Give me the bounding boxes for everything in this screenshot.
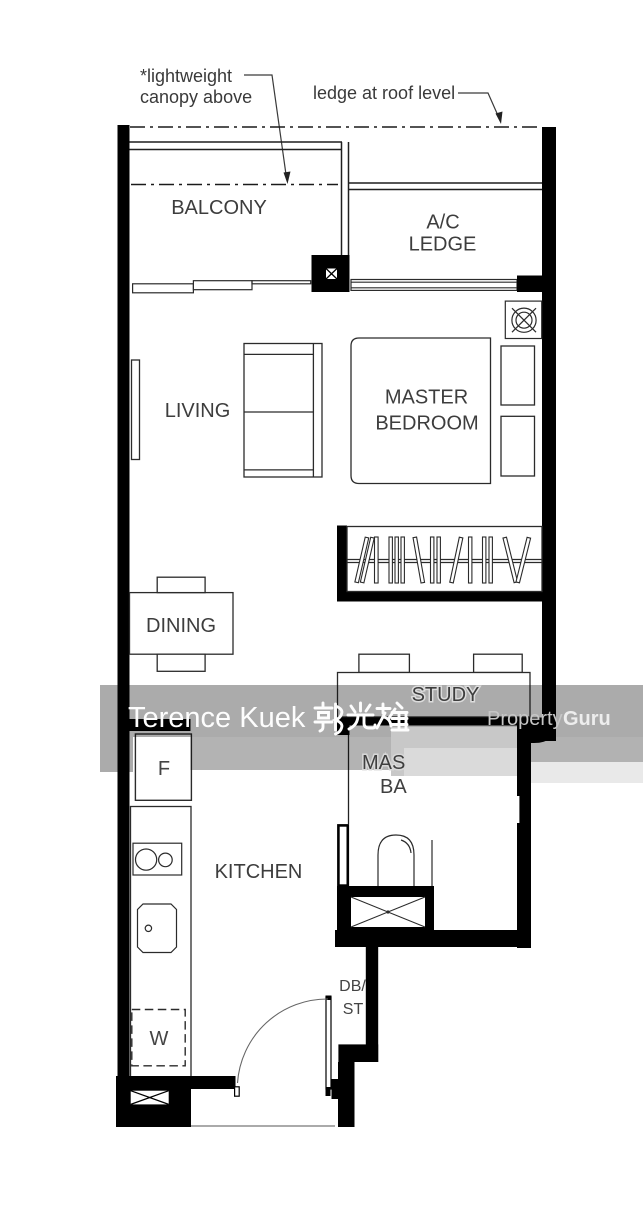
svg-text:*lightweight: *lightweight [140,66,232,86]
svg-text:Property: Property [487,708,563,730]
svg-text:F: F [158,758,170,780]
svg-text:ledge at roof level: ledge at roof level [313,83,455,103]
svg-text:MASTER: MASTER [385,387,468,409]
svg-text:LEDGE: LEDGE [409,234,477,256]
svg-text:BEDROOM: BEDROOM [375,413,478,435]
svg-text:ST: ST [343,1001,364,1018]
svg-text:LIVING: LIVING [165,400,231,422]
svg-text:canopy above: canopy above [140,87,252,107]
svg-text:A/C: A/C [426,212,459,234]
svg-text:Terence Kuek: Terence Kuek [128,702,306,734]
svg-text:DB/: DB/ [339,978,366,995]
svg-text:BALCONY: BALCONY [171,197,267,219]
svg-text:KITCHEN: KITCHEN [215,861,303,883]
svg-text:MAS: MAS [362,752,405,774]
svg-text:BA: BA [380,776,407,798]
svg-text:Guru: Guru [563,708,611,730]
svg-text:W: W [150,1028,169,1050]
svg-text:STUDY: STUDY [412,684,480,706]
svg-text:DINING: DINING [146,615,216,637]
